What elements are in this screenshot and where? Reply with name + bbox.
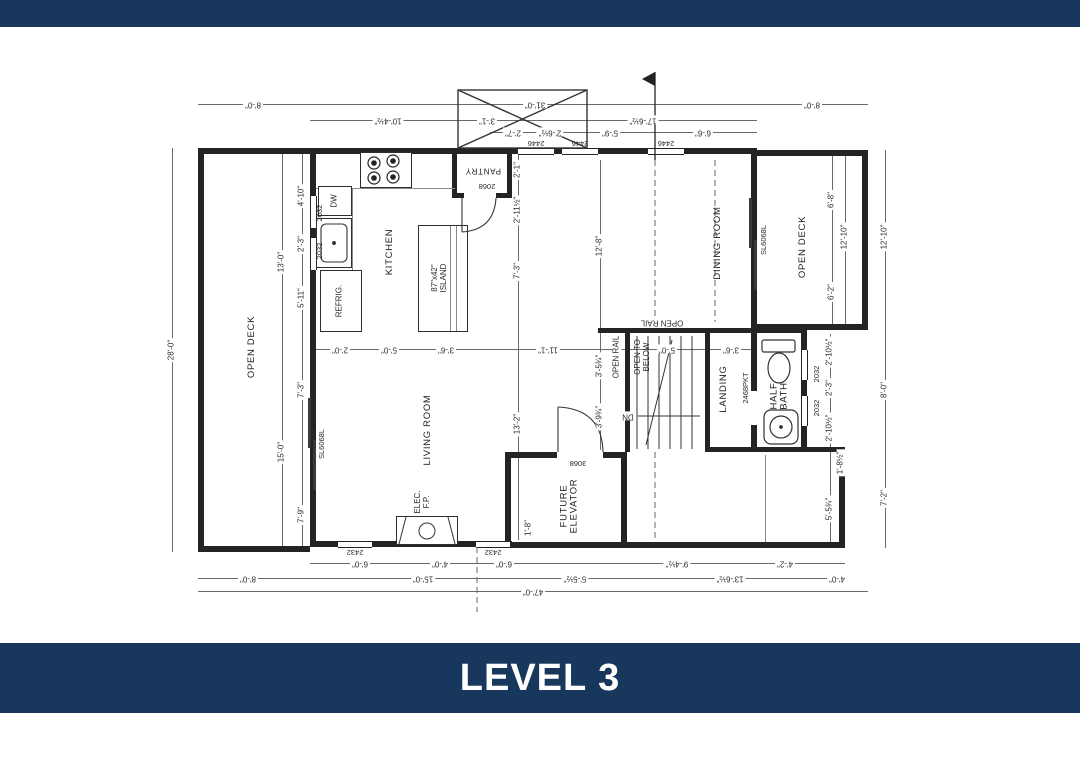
- room-label-half-bath: HALF BATH: [770, 380, 791, 411]
- dim-int-2-11h: 2'-11½": [514, 195, 523, 225]
- dim-bottom-4-0-b: 4'-0": [827, 574, 847, 583]
- dim-int-3-6-landing: 3'-6": [721, 345, 741, 354]
- dim-left-15-0: 15'-0": [278, 440, 287, 464]
- dim-left-13-0: 13'-0": [278, 250, 287, 274]
- door-label-2068: 2068: [477, 182, 498, 190]
- dim-int-7-3: 7'-3": [514, 261, 523, 281]
- toilet: [762, 340, 795, 383]
- open-to-below-line2: BELOW: [643, 339, 652, 375]
- dim-bottom-9-4h: 9'-4½": [664, 559, 691, 568]
- open-rail-top-label: OPEN RAIL: [639, 318, 686, 327]
- dim-left-2-3: 2'-3": [298, 234, 307, 254]
- dim-bottom-8-0: 8'-0": [238, 574, 258, 583]
- dim-int-3-6: 3'-6": [436, 345, 456, 354]
- fireplace-detail: [399, 517, 455, 544]
- room-label-landing: LANDING: [719, 363, 729, 414]
- window-label-2432-2: 2432: [483, 548, 504, 556]
- room-label-pantry: PANTRY: [463, 166, 503, 175]
- island-label: 87"x42" ISLAND: [431, 262, 449, 295]
- island-line2: ISLAND: [440, 264, 449, 293]
- dim-top-2-6h: 2'-6½": [537, 128, 564, 137]
- dim-left-28-0: 28'-0": [168, 338, 177, 362]
- half-bath-line2: BATH: [780, 382, 790, 409]
- dim-right-2-10h-a: 2'-10½": [826, 336, 835, 367]
- dim-right-7-2: 7'-2": [881, 488, 890, 508]
- dim-right-8-0: 8'-0": [881, 380, 890, 400]
- slider-label-left: SL6068L: [318, 427, 326, 461]
- dim-top-left-8-0: 8'-0": [243, 100, 263, 109]
- dim-right-6-8: 6'-8": [828, 190, 837, 210]
- dim-bottom-15-0: 15'-0": [411, 574, 435, 583]
- dim-top-5-9: 5'-9": [600, 128, 620, 137]
- open-rail-side-label: OPEN RAIL: [613, 334, 622, 381]
- pocket-door-label: 2468PKT: [742, 370, 750, 405]
- dim-int-5-0: 5'-0": [379, 345, 399, 354]
- dim-right-6-2: 6'-2": [828, 282, 837, 302]
- room-label-dining-room: DINING ROOM: [713, 204, 723, 281]
- room-label-future-elevator: FUTURE ELEVATOR: [560, 477, 581, 536]
- dim-int-3-5t: 3'-5¾": [596, 353, 605, 380]
- elec-fp-line2: F.P.: [423, 490, 432, 513]
- window-label-2446-3: 2446: [656, 139, 677, 147]
- pantry-door-arc: [462, 198, 496, 232]
- dim-right-2-10h-b: 2'-10½": [826, 412, 835, 443]
- refrigerator-label: REFRIG.: [336, 283, 345, 319]
- dim-int-2-1: 2'-1": [514, 160, 523, 180]
- dim-int-3-9t: 3'-9¾": [596, 404, 605, 431]
- dim-top-17-6h: 17'-6½": [627, 116, 658, 125]
- dim-bottom-6-0-b: 6'-0": [494, 559, 514, 568]
- dim-bottom-5-5h: 5'-5½": [562, 574, 589, 583]
- room-label-open-deck-right: OPEN DECK: [798, 214, 808, 280]
- dim-int-11-1: 11'-1": [536, 345, 560, 354]
- range-burners: [368, 155, 399, 184]
- future-elevator-line2: ELEVATOR: [570, 479, 580, 534]
- dim-right-1-8h: 1'-8½": [837, 450, 846, 477]
- dim-left-4-10: 4'-10": [298, 184, 307, 208]
- dim-left-7-3: 7'-3": [298, 380, 307, 400]
- dim-int-13-2: 13'-2": [514, 412, 523, 436]
- centerlines: [477, 160, 715, 612]
- dim-right-2-3: 2'-3": [826, 378, 835, 398]
- sink-basin: [321, 224, 347, 262]
- floor-plan-page: LEVEL 3: [0, 0, 1080, 760]
- window-label-2446-2: 2446: [570, 139, 591, 147]
- dim-int-5-0-stair: 5'-0": [657, 345, 677, 354]
- dim-bottom-47-0: 47'-0": [521, 587, 545, 596]
- dim-top-10-4h: 10'-4½": [372, 116, 403, 125]
- dim-bottom-4-0: 4'-0": [430, 559, 450, 568]
- dim-bottom-6-0-a: 6'-0": [350, 559, 370, 568]
- stairs-down-label: DN: [620, 412, 636, 421]
- dim-top-right-8-0: 8'-0": [802, 100, 822, 109]
- window-label-2032-bath-2: 2032: [813, 398, 821, 419]
- dim-top-6-6: 6'-6": [693, 128, 713, 137]
- window-label-2432-1: 2432: [345, 548, 366, 556]
- open-to-below-label: OPEN TO BELOW: [634, 337, 652, 377]
- room-label-open-deck-left: OPEN DECK: [247, 314, 257, 380]
- dim-top-2-7: 2'-7": [503, 128, 523, 137]
- dim-left-7-9: 7'-9": [298, 505, 307, 525]
- dim-bottom-4-2: 4'-2": [775, 559, 795, 568]
- dishwasher-label: DW: [331, 192, 340, 209]
- plan-fixtures-layer: [0, 0, 1080, 760]
- dim-left-5-11: 5'-11": [298, 286, 307, 310]
- room-label-kitchen: KITCHEN: [385, 227, 395, 278]
- window-label-2032-left-2: 2032: [316, 241, 324, 262]
- dim-bottom-13-6h: 13'-6½": [714, 574, 745, 583]
- dim-right-12-10-inner: 12'-10": [841, 223, 850, 252]
- dim-top-3-1: 3'-1": [477, 116, 497, 125]
- bath-sink: [764, 410, 798, 444]
- window-label-2446-1: 2446: [526, 139, 547, 147]
- window-label-2032-bath-1: 2032: [813, 364, 821, 385]
- door-label-3068: 3068: [568, 459, 589, 467]
- room-label-living-room: LIVING ROOM: [423, 392, 433, 467]
- window-label-2032-left-1: 2032: [316, 203, 324, 224]
- dim-int-1-8: 1'-8": [525, 518, 534, 538]
- dim-int-12-8: 12'-8": [596, 234, 605, 258]
- dim-top-31-0: 31'-0": [523, 100, 547, 109]
- elec-fp-label: ELEC. F.P.: [414, 488, 432, 515]
- dim-int-2-0: 2'-0": [330, 345, 350, 354]
- slider-label-dining: SL6068L: [760, 223, 768, 257]
- dim-right-5-5t: 5'-5¾": [826, 496, 835, 523]
- dim-right-12-10-outer: 12'-10": [881, 223, 890, 252]
